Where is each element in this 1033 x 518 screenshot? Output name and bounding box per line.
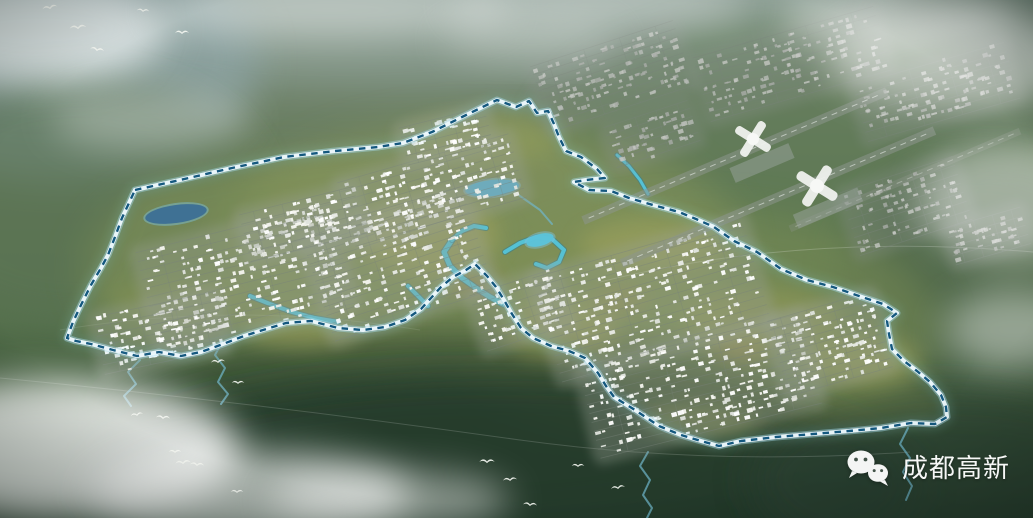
scene-svg	[0, 0, 1033, 518]
vignette	[0, 0, 1033, 518]
aerial-masterplan-render: 成都高新	[0, 0, 1033, 518]
